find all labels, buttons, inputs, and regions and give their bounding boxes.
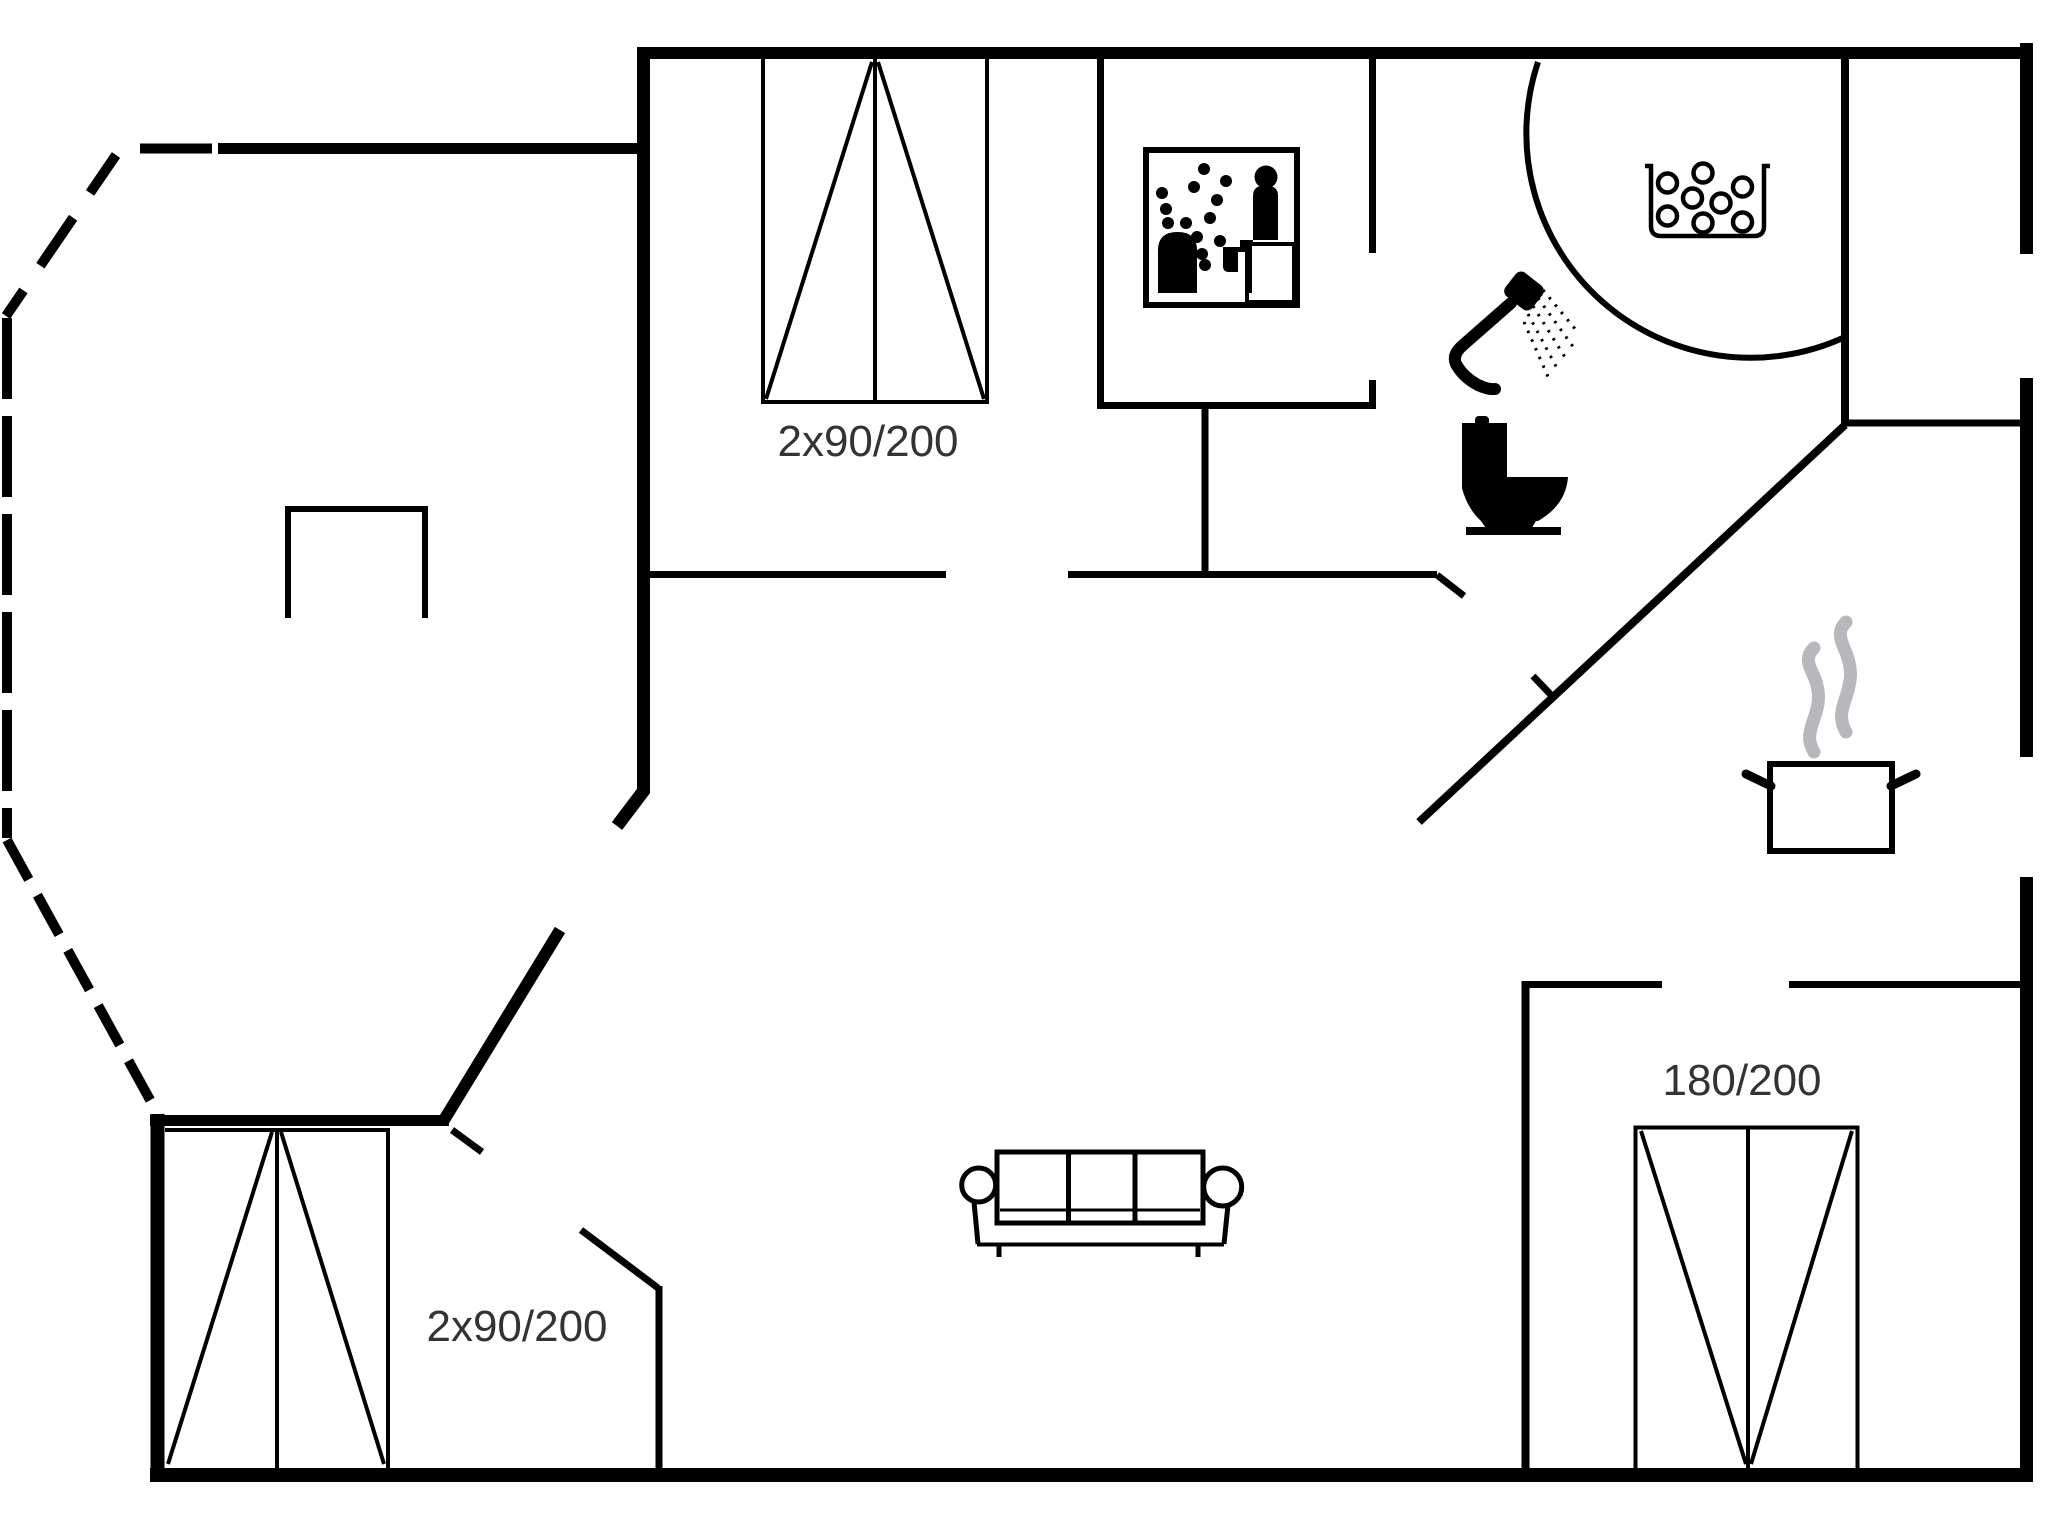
svg-text:2x90/200: 2x90/200 (777, 417, 958, 466)
svg-text:180/200: 180/200 (1662, 1056, 1821, 1105)
svg-text:2x90/200: 2x90/200 (426, 1302, 607, 1351)
